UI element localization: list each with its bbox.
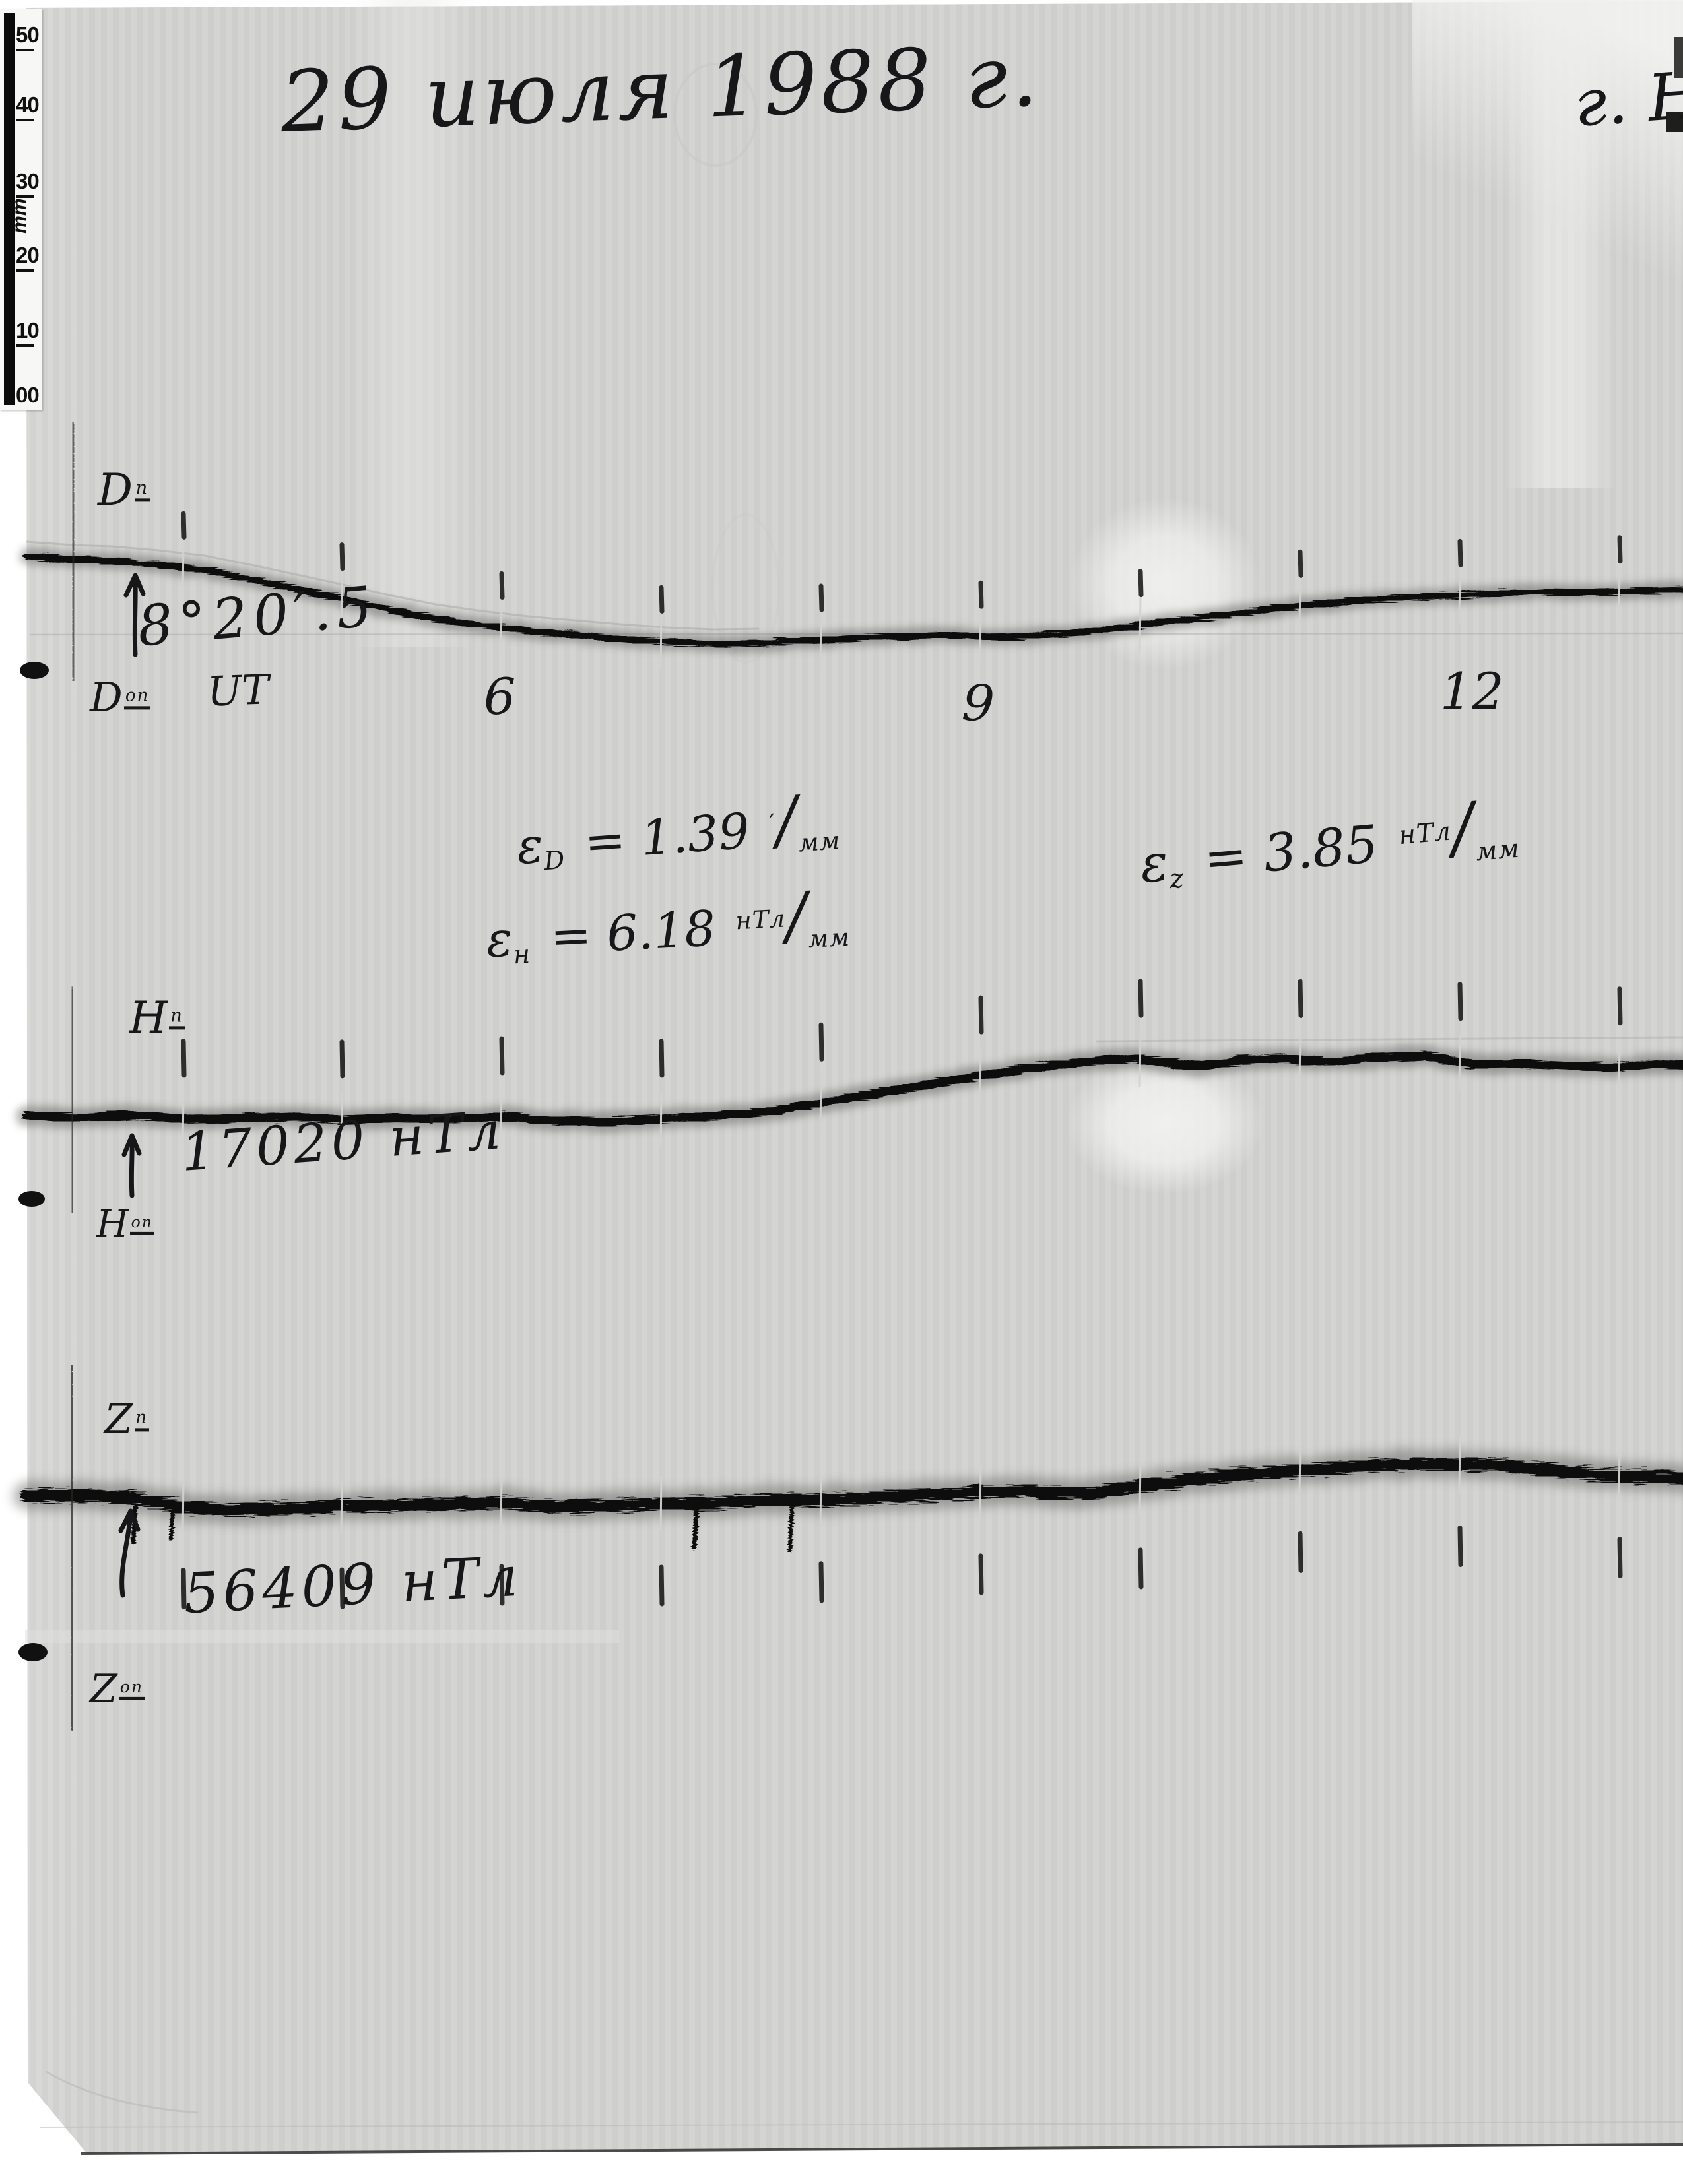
z-reference-value: 56409 нТл [182, 1549, 523, 1622]
hour-label-9: 9 [960, 677, 996, 729]
h-trace-label: Hп [129, 996, 185, 1041]
hour-label-6: 6 [484, 672, 515, 722]
ruler-label-30: 30 [16, 169, 39, 193]
magnetogram-scan: 50 40 30 20 10 00 mm 29 июля 1988 г. г. … [0, 0, 1683, 2184]
h-baseline-label: Hоп [96, 1206, 154, 1244]
d-trace-label: Dп [98, 468, 150, 513]
d-baseline-label: Dоп [90, 677, 150, 720]
ruler-label-10: 10 [16, 318, 39, 342]
time-scale-label: UT [207, 669, 270, 712]
hour-label-12: 12 [1440, 666, 1504, 717]
ruler-tick [16, 344, 34, 347]
z-baseline-label: Zоп [90, 1669, 145, 1710]
ruler-label-40: 40 [16, 92, 39, 117]
photographic-paper [0, 0, 1683, 2184]
ruler-tick [16, 119, 34, 121]
ruler-label-00: 00 [16, 383, 39, 407]
mm-ruler: 50 40 30 20 10 00 mm [0, 9, 42, 410]
ruler-unit-mm: mm [9, 195, 31, 237]
ruler-label-20: 20 [16, 243, 39, 267]
ruler-label-50: 50 [16, 22, 39, 47]
z-trace-label: Zп [104, 1399, 149, 1442]
station-name: г. Н [1572, 63, 1683, 137]
date-title: 29 июля 1988 г. [279, 34, 1042, 145]
ruler-tick [16, 49, 34, 51]
ruler-tick [16, 269, 34, 272]
